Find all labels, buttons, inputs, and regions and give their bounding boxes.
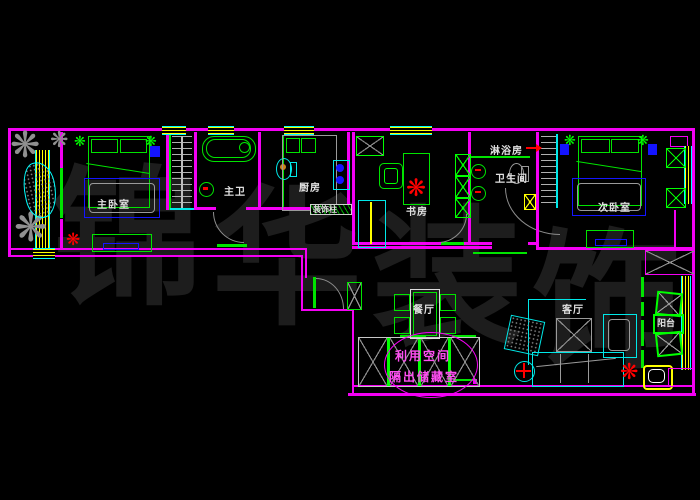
- closet-rail: [181, 136, 183, 208]
- cabinet-panel: [359, 338, 387, 386]
- bay-window-sill: [595, 239, 627, 246]
- room-label-study: 书房: [406, 203, 428, 218]
- shelf-box: [455, 154, 471, 176]
- drain-mark: [475, 191, 481, 193]
- shelf-box: [455, 198, 471, 218]
- rug: [504, 315, 546, 357]
- chair: [394, 294, 410, 311]
- floor-drain-icon: [471, 164, 486, 179]
- wall: [352, 132, 355, 245]
- pillow: [91, 139, 118, 153]
- closet-edge: [170, 208, 194, 210]
- nightstand: [648, 144, 657, 155]
- sofa-cushion: [588, 354, 589, 383]
- pillow: [581, 139, 610, 153]
- plant-icon: ❋: [50, 130, 68, 152]
- lamp-cross: [516, 370, 531, 372]
- room-label-balcony: 阳台: [657, 316, 675, 329]
- pillow: [611, 139, 639, 153]
- shaft-box: [524, 194, 536, 210]
- floor-drain-icon: [471, 186, 486, 201]
- wardrobe-box: [666, 188, 686, 208]
- wall: [196, 207, 216, 210]
- wall: [194, 132, 197, 210]
- planter: [655, 331, 683, 358]
- burner: [336, 164, 344, 172]
- room-label-kitchen: 厨房: [299, 179, 321, 194]
- window: [284, 126, 314, 135]
- floor-plan-canvas: 锦 华 装 饰 ❋ ❋ ❋ ❋ ❋ 主卧室: [0, 0, 700, 500]
- sink: [301, 138, 316, 153]
- wall: [348, 393, 696, 396]
- shelf-box: [455, 176, 471, 198]
- door-threshold: [217, 244, 247, 247]
- annotation-text: 利用空间: [395, 347, 451, 364]
- sofa: [532, 352, 624, 387]
- sliding-door: [641, 302, 644, 316]
- flower-icon: ❋: [564, 134, 576, 148]
- wall: [8, 128, 694, 131]
- bay-window-sill: [103, 243, 139, 250]
- wall: [305, 248, 307, 278]
- wardrobe-box: [666, 148, 686, 168]
- chair-inner: [384, 168, 398, 184]
- wall: [352, 309, 354, 393]
- plant-icon: ❋: [406, 176, 426, 200]
- flower-icon: ❋: [74, 135, 86, 149]
- chair: [440, 294, 456, 311]
- annotation-ellipse: [384, 332, 478, 398]
- arrow-icon: [536, 144, 542, 152]
- chair: [440, 317, 456, 334]
- window: [208, 126, 234, 135]
- room-label-second-bedroom: 次卧室: [598, 199, 631, 214]
- wall: [470, 242, 492, 245]
- window: [390, 126, 432, 135]
- pillow: [120, 139, 147, 153]
- wall: [166, 132, 169, 210]
- drain-mark: [203, 187, 208, 190]
- column-box: [356, 136, 384, 156]
- sliding-door: [641, 320, 644, 346]
- door-threshold: [473, 252, 527, 254]
- sink: [286, 138, 300, 153]
- chair: [394, 317, 410, 334]
- drain-mark: [475, 169, 481, 171]
- drain-icon: [239, 142, 250, 153]
- sliding-door: [60, 168, 63, 218]
- window: [162, 126, 186, 135]
- leader-line: [526, 147, 536, 149]
- annotation-text: 隔出储藏室: [389, 368, 459, 385]
- tv-cabinet: [556, 318, 592, 352]
- burner: [336, 176, 344, 184]
- sofa-cushion: [560, 354, 561, 383]
- side-box: [668, 368, 693, 387]
- bookcase-stripe: [370, 202, 372, 244]
- armchair-inner: [608, 319, 630, 351]
- ac-box: [645, 250, 695, 275]
- closet-edge: [169, 134, 171, 210]
- room-label-master-bedroom: 主卧室: [97, 196, 130, 211]
- room-label-living: 客厅: [562, 301, 584, 316]
- column-frame: [347, 282, 362, 310]
- wall: [60, 219, 63, 249]
- ceiling-line: [528, 299, 586, 300]
- label-deco-column: 装饰柱: [313, 204, 337, 215]
- room-label-dining: 餐厅: [413, 301, 435, 316]
- flower-icon: ❋: [145, 135, 157, 149]
- bookcase: [358, 200, 386, 248]
- wall: [258, 132, 261, 210]
- plant-icon: ❋: [10, 128, 40, 164]
- wall: [301, 255, 303, 311]
- room-label-master-bath: 主卫: [224, 183, 246, 198]
- room-label-shower: 淋浴房: [490, 142, 523, 157]
- flower-icon: ❋: [66, 232, 80, 249]
- closet-hangers: [541, 136, 556, 206]
- flower-icon: ❋: [637, 134, 649, 148]
- stool-inner: [648, 369, 665, 383]
- flower-icon: ❋: [620, 362, 638, 384]
- sliding-door: [641, 277, 644, 297]
- room-label-bathroom: 卫生间: [495, 170, 528, 185]
- wall: [674, 210, 676, 250]
